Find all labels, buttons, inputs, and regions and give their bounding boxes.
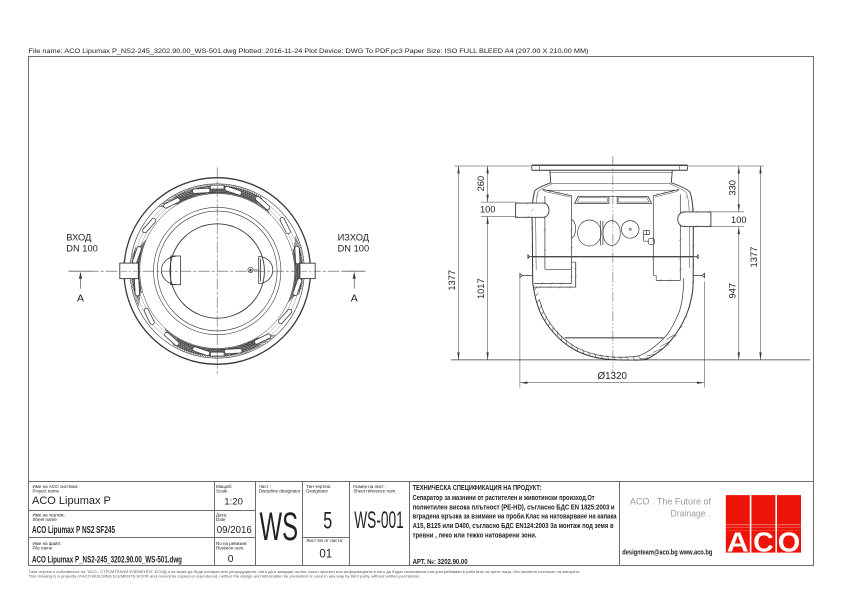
svg-text:Project name: Project name [33,488,60,493]
svg-text:1:20: 1:20 [224,497,243,508]
svg-text:100: 100 [731,215,747,225]
svg-text:Сепаратор за мазнини от растит: Сепаратор за мазнини от растителен и жив… [413,495,595,502]
svg-text:This drawing is a property of: This drawing is a property of ACO BUILDI… [29,574,421,579]
svg-text:Ø1320: Ø1320 [597,371,627,382]
svg-text:АРТ. №: 3202.90.00: АРТ. №: 3202.90.00 [413,558,468,566]
svg-text:Sheet reference num.: Sheet reference num. [353,488,396,493]
svg-text:ВХОД: ВХОД [66,233,92,243]
svg-text:1017: 1017 [476,278,486,299]
svg-text:100: 100 [480,205,496,215]
svg-text:Designator: Designator [306,488,328,493]
svg-text:O: O [778,527,801,558]
svg-text:WS: WS [260,505,299,549]
svg-text:DN 100: DN 100 [66,244,98,254]
svg-text:Date: Date [216,517,226,522]
svg-text:Sheet name: Sheet name [33,517,58,522]
svg-text:Scale: Scale [216,488,228,493]
svg-text:полиетилен висока плътност (PE: полиетилен висока плътност (PE-HD), съгл… [413,504,615,511]
svg-text:A: A [77,293,84,305]
svg-text:Drainage .: Drainage . [671,509,711,520]
svg-text:ИЗХОД: ИЗХОД [338,233,370,243]
svg-text:ACO Lipumax P: ACO Lipumax P [32,495,111,507]
svg-text:вградена връзка за взимане на: вградена връзка за взимане на проби.Клас… [413,513,617,521]
svg-text:A: A [727,527,749,558]
svg-text:1377: 1377 [749,247,759,268]
svg-text:A15, B125 или D400, съгласно Б: A15, B125 или D400, съгласно БДС EN124:2… [413,523,615,530]
svg-text:Лист No от листа:: Лист No от листа: [306,538,343,543]
svg-text:260: 260 [476,176,486,192]
svg-text:09/2016: 09/2016 [217,525,252,536]
svg-text:File name: ACO Lipumax P_NS2-2: File name: ACO Lipumax P_NS2-245_3202.90… [29,48,589,55]
svg-text:designteam@aco.bg www.aco.bg: designteam@aco.bg www.aco.bg [622,547,712,556]
svg-text:947: 947 [727,283,737,299]
svg-text:ACO Lipumax P_NS2-245_3202.90.: ACO Lipumax P_NS2-245_3202.90.00_WS-501.… [32,554,182,564]
svg-text:C: C [753,527,774,558]
svg-text:тревни , леко или тежко натова: тревни , леко или тежко натоварени зони. [413,532,537,539]
svg-text:File name: File name [33,545,53,550]
svg-text:DN 100: DN 100 [338,244,370,254]
svg-text:1377: 1377 [447,270,457,291]
svg-text:5: 5 [323,507,332,534]
svg-text:Discipline designator: Discipline designator [259,488,301,493]
svg-text:330: 330 [727,180,737,196]
svg-text:0: 0 [228,554,234,565]
svg-text:ACO Lipumax P NS2 SF245: ACO Lipumax P NS2 SF245 [32,525,115,536]
svg-text:A: A [351,293,358,305]
svg-text:ACO . The Future of: ACO . The Future of [630,496,711,507]
svg-text:ТЕХНИЧЕСКА СПЕЦИФИКАЦИЯ НА ПРО: ТЕХНИЧЕСКА СПЕЦИФИКАЦИЯ НА ПРОДУКТ: [413,485,542,492]
svg-text:Revision num.: Revision num. [216,545,245,550]
svg-text:WS-001: WS-001 [354,507,404,534]
svg-text:01: 01 [319,548,332,560]
